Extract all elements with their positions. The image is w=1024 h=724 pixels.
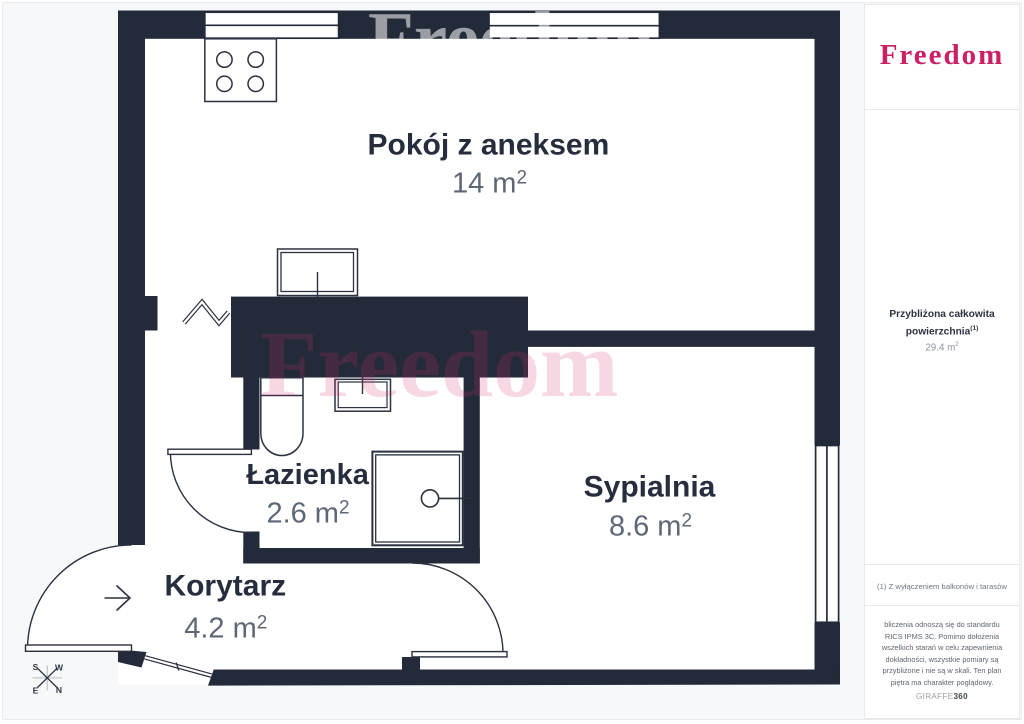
svg-text:W: W <box>55 663 64 673</box>
svg-text:N: N <box>56 685 62 695</box>
svg-text:Pokój z aneksem: Pokój z aneksem <box>368 129 610 162</box>
svg-text:E: E <box>33 685 39 695</box>
svg-text:Korytarz: Korytarz <box>164 570 286 603</box>
svg-text:S: S <box>33 662 39 672</box>
svg-text:14 m2: 14 m2 <box>452 168 527 200</box>
svg-text:8.6 m2: 8.6 m2 <box>609 511 692 543</box>
svg-text:Freedom: Freedom <box>368 0 654 81</box>
svg-text:Freedom: Freedom <box>260 313 618 417</box>
svg-text:2.6 m2: 2.6 m2 <box>266 498 349 530</box>
svg-text:Łazienka: Łazienka <box>246 459 369 491</box>
svg-text:Sypialnia: Sypialnia <box>584 471 716 504</box>
svg-text:4.2 m2: 4.2 m2 <box>184 613 267 645</box>
